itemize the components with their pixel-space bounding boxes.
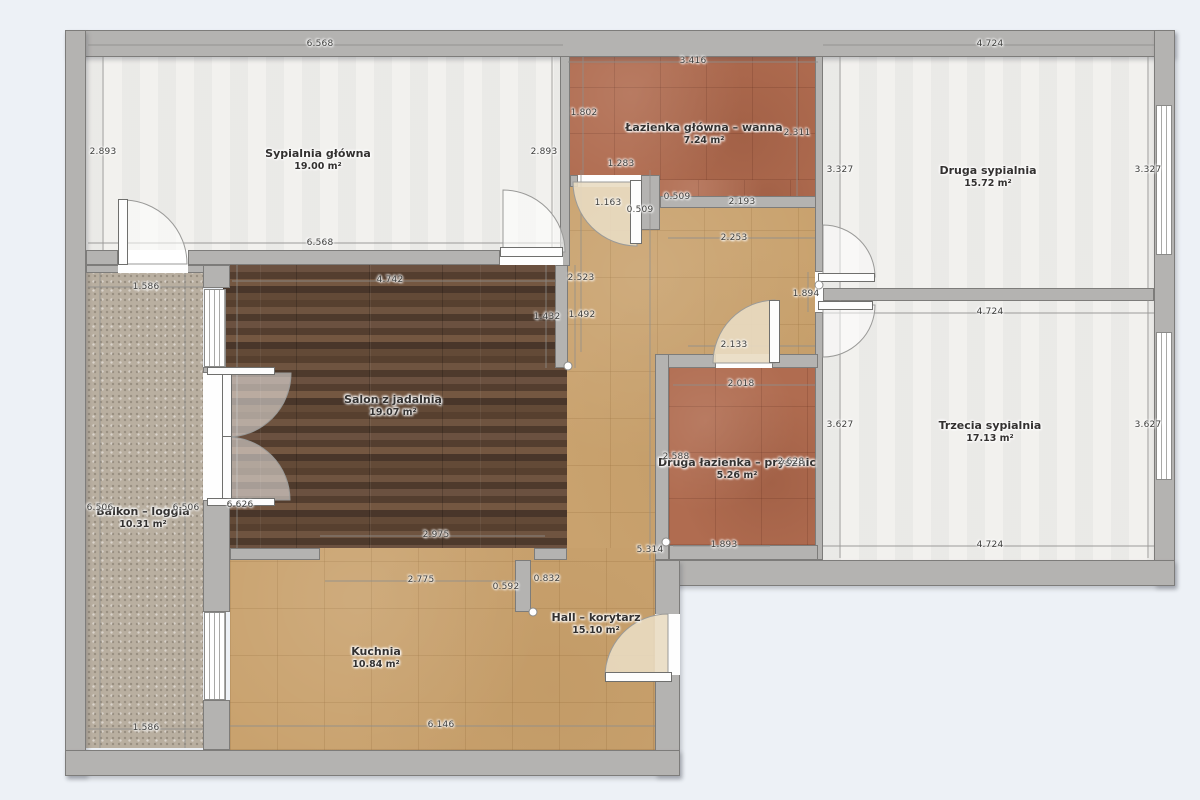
- dimension-label: 4.724: [977, 307, 1004, 317]
- third-bedroom-door-swing-arc: [823, 305, 875, 357]
- dimension-and-door-overlay: [0, 0, 1200, 800]
- dimension-label: 3.327: [827, 165, 854, 175]
- dimension-label: 2.628: [778, 457, 805, 467]
- dimension-label: 4.724: [977, 39, 1004, 49]
- entrance-door-leaf: [605, 672, 672, 682]
- second-bathroom-door-leaf: [769, 300, 780, 363]
- french-door-top-swing-arc: [227, 373, 291, 437]
- dimension-label: 5.314: [637, 545, 664, 555]
- room-label-second-bedroom: Druga sypialnia 15.72 m²: [939, 164, 1036, 190]
- balcony-door-leaf: [118, 199, 128, 265]
- dimension-label: 1.492: [569, 310, 596, 320]
- dimension-label: 0.509: [664, 192, 691, 202]
- french-door-bottom-swing-arc: [227, 437, 290, 500]
- room-label-hall: Hall – korytarz 15.10 m²: [551, 611, 640, 637]
- room-area: 10.84 m²: [351, 659, 401, 671]
- wall-end-marker: [529, 608, 538, 617]
- dimension-label: 1.163: [595, 198, 622, 208]
- dimension-label: 6.146: [428, 720, 455, 730]
- dimension-label: 2.523: [568, 273, 595, 283]
- room-name: Kuchnia: [351, 645, 401, 659]
- room-name: Trzecia sypialnia: [939, 419, 1042, 433]
- dimension-label: 1.894: [793, 289, 820, 299]
- dimension-label: 1.802: [571, 108, 598, 118]
- room-area: 15.10 m²: [551, 625, 640, 637]
- room-name: Łazienka główna – wanna: [625, 121, 782, 135]
- room-name: Sypialnia główna: [265, 147, 371, 161]
- main-bedroom-door-swing-arc: [503, 190, 565, 252]
- door-swings: [123, 182, 875, 677]
- dimension-label: 1.586: [133, 723, 160, 733]
- room-area: 10.31 m²: [96, 519, 189, 531]
- french-door-leaf-bottom: [222, 436, 232, 500]
- room-label-third-bedroom: Trzecia sypialnia 17.13 m²: [939, 419, 1042, 445]
- second-bedroom-door-sill: [818, 273, 875, 282]
- dimension-label: 2.975: [423, 530, 450, 540]
- dimension-label: 2.311: [784, 128, 811, 138]
- room-label-living-room: Salon z jadalnią 19.07 m²: [344, 393, 442, 419]
- dimension-label: 3.627: [1135, 420, 1162, 430]
- room-area: 7.24 m²: [625, 135, 782, 147]
- third-bedroom-door-sill: [818, 301, 873, 310]
- dimension-label: 2.893: [531, 147, 558, 157]
- dimension-label: 1.432: [534, 312, 561, 322]
- floor-plan: Sypialnia główna 19.00 m² Łazienka główn…: [0, 0, 1200, 800]
- room-label-kitchen: Kuchnia 10.84 m²: [351, 645, 401, 671]
- dimension-label: 0.592: [493, 582, 520, 592]
- dimension-label: 2.775: [408, 575, 435, 585]
- dimension-label: 3.627: [827, 420, 854, 430]
- dimension-label: 2.588: [663, 452, 690, 462]
- dimension-label: 6.506: [173, 503, 200, 513]
- dimension-label: 6.626: [227, 500, 254, 510]
- dimension-label: 4.742: [377, 275, 404, 285]
- dimension-label: 2.253: [721, 233, 748, 243]
- dimension-label: 6.506: [87, 503, 114, 513]
- dimension-label: 2.193: [729, 197, 756, 207]
- dimension-label: 0.832: [534, 574, 561, 584]
- dimension-label: 2.018: [728, 379, 755, 389]
- second-bathroom-door-swing-arc: [713, 300, 775, 363]
- dimension-label: 6.568: [307, 39, 334, 49]
- dimension-label: 1.283: [608, 159, 635, 169]
- balcony-door-swing-arc: [123, 200, 187, 264]
- room-name: Salon z jadalnią: [344, 393, 442, 407]
- dimension-label: 4.724: [977, 540, 1004, 550]
- room-area: 19.07 m²: [344, 407, 442, 419]
- dimension-label: 2.893: [90, 147, 117, 157]
- room-name: Hall – korytarz: [551, 611, 640, 625]
- dimension-label: 0.509: [627, 205, 654, 215]
- main-bedroom-door-leaf: [500, 247, 563, 257]
- dimension-label: 3.416: [680, 56, 707, 66]
- french-door-sill-top: [207, 367, 275, 375]
- dimension-label: 6.568: [307, 238, 334, 248]
- room-area: 19.00 m²: [265, 161, 371, 173]
- room-area: 17.13 m²: [939, 433, 1042, 445]
- wall-end-marker: [564, 362, 573, 371]
- dimension-label: 3.327: [1135, 165, 1162, 175]
- dimension-label: 1.586: [133, 282, 160, 292]
- room-area: 15.72 m²: [939, 178, 1036, 190]
- room-name: Druga sypialnia: [939, 164, 1036, 178]
- dimension-label: 2.133: [721, 340, 748, 350]
- french-door-leaf-top: [222, 373, 232, 437]
- room-label-main-bedroom: Sypialnia główna 19.00 m²: [265, 147, 371, 173]
- room-label-main-bathroom: Łazienka główna – wanna 7.24 m²: [625, 121, 782, 147]
- dimension-label: 1.893: [711, 540, 738, 550]
- room-area: 5.26 m²: [658, 470, 816, 482]
- second-bedroom-door-swing-arc: [823, 225, 875, 277]
